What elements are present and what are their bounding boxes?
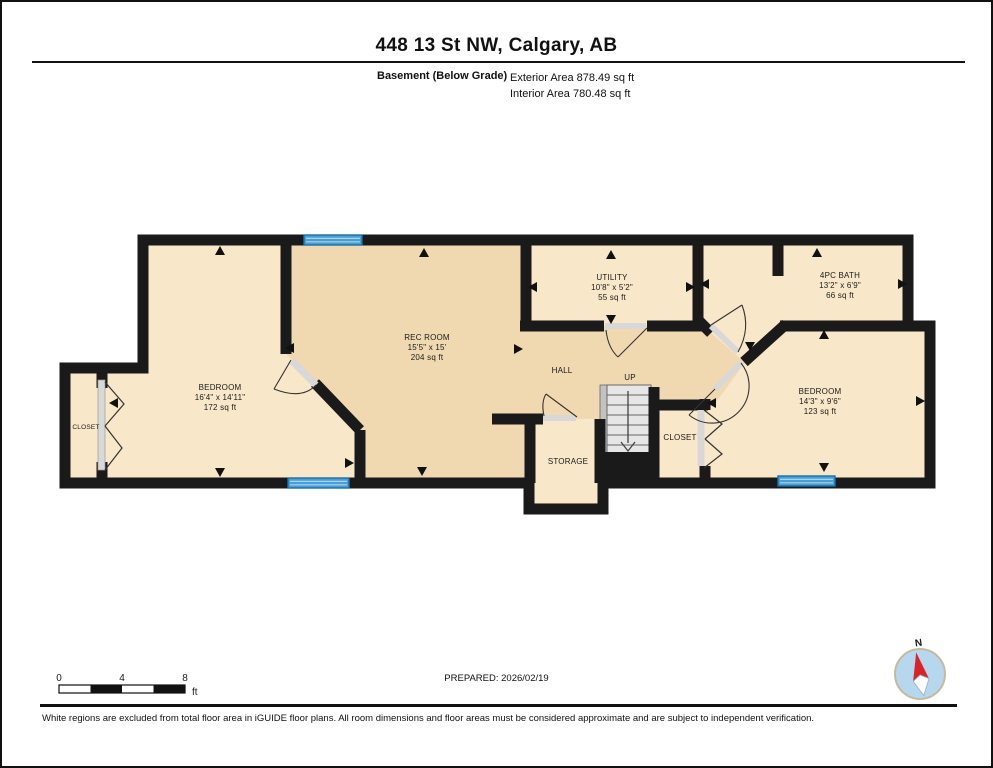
bedroom-left-name: BEDROOM (199, 383, 242, 392)
utility-dims: 10'8" x 5'2" (591, 283, 633, 292)
rec-room-name: REC ROOM (404, 333, 450, 342)
disclaimer-text: White regions are excluded from total fl… (42, 713, 814, 724)
floorplan-svg: BEDROOM 16'4" x 14'11" 172 sq ft REC ROO… (2, 2, 993, 768)
rec-room-area: 204 sq ft (411, 353, 444, 362)
rec-room-dims: 15'5" x 15' (408, 343, 447, 352)
compass-north-label: N (914, 638, 923, 650)
bedroom-right-name: BEDROOM (799, 387, 842, 396)
hall-label: HALL (552, 366, 573, 375)
window-rec-room (304, 235, 362, 245)
bath-area: 66 sq ft (826, 291, 854, 300)
bedroom-right-dims: 14'3" x 9'6" (799, 397, 841, 406)
wall-under-stairs (598, 452, 658, 486)
room-fills (65, 240, 930, 509)
closet-left-label: CLOSET (72, 424, 99, 431)
window-bedroom-left (288, 478, 349, 488)
storage-label: STORAGE (548, 457, 588, 466)
bedroom-left-dims: 16'4" x 14'11" (195, 393, 246, 402)
floorplan-page: 448 13 St NW, Calgary, AB Basement (Belo… (0, 0, 993, 768)
bath-dims: 13'2" x 6'9" (819, 281, 861, 290)
footer-divider (40, 704, 957, 707)
bedroom-right-area: 123 sq ft (804, 407, 837, 416)
window-bedroom-right (778, 476, 835, 486)
bedroom-left-area: 172 sq ft (204, 403, 237, 412)
bath-name: 4PC BATH (820, 271, 860, 280)
utility-name: UTILITY (596, 273, 628, 282)
utility-area: 55 sq ft (598, 293, 626, 302)
closet-right-label: CLOSET (663, 433, 696, 442)
prepared-date: PREPARED: 2026/02/19 (2, 673, 991, 684)
scale-unit: ft (192, 687, 198, 698)
staircase (600, 385, 651, 457)
compass: N (895, 638, 945, 699)
stairs-up-label: UP (624, 373, 636, 382)
